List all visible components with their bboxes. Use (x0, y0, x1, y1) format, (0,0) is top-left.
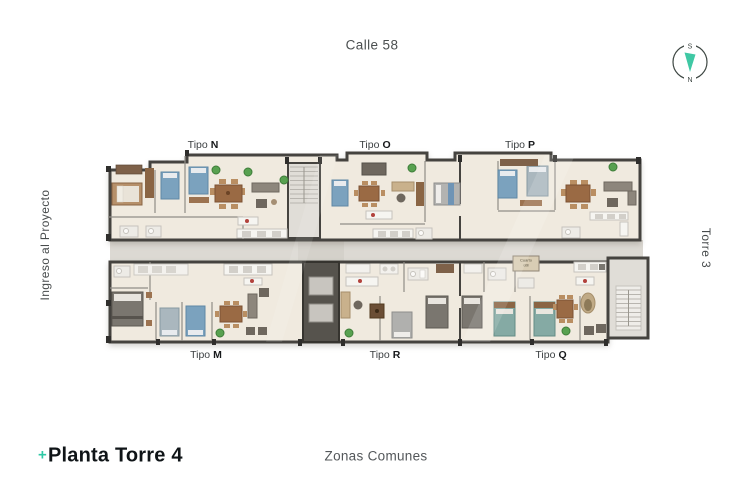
unit-label-tipo-o: TipoO (359, 139, 390, 151)
plan-title: +Planta Torre 4 (38, 445, 183, 468)
common-zones-label: Zonas Comunes (325, 449, 428, 464)
stair-core-lower (608, 258, 648, 338)
plan-title-text: Planta Torre 4 (48, 445, 183, 468)
plant (408, 164, 416, 172)
double-bed (434, 183, 460, 205)
street-label: Calle 58 (346, 38, 399, 53)
unit-label-tipo-q: TipoQ (535, 349, 566, 361)
lower-block (106, 256, 648, 346)
unit-label-letter: N (211, 139, 219, 151)
unit-label-tipo-p: TipoP (505, 139, 535, 151)
bathroom-fixtures (562, 227, 580, 238)
bathroom-fixtures (518, 278, 534, 288)
washer-closet (380, 264, 398, 274)
bathroom-fixtures (416, 228, 432, 239)
unit-label-prefix: Tipo (505, 139, 525, 151)
compass: S N (670, 41, 710, 83)
unit-label-tipo-m: TipoM (190, 349, 222, 361)
single-bed (498, 170, 517, 198)
wardrobe (436, 264, 454, 273)
double-bed (112, 183, 142, 205)
tower3-label: Torre 3 (699, 228, 713, 268)
plant (212, 166, 220, 174)
double-bed (426, 296, 448, 328)
unit-label-letter: M (213, 349, 222, 361)
bathroom-fixtures (114, 266, 130, 277)
lounge-chair (581, 293, 595, 313)
nightstand (146, 320, 152, 326)
unit-label-letter: Q (558, 349, 566, 361)
balcony-chairs (362, 163, 386, 175)
unit-label-letter: P (528, 139, 535, 151)
kitchen-counter (346, 277, 378, 286)
single-bed (392, 312, 412, 338)
unit-label-prefix: Tipo (359, 139, 379, 151)
wardrobe (500, 159, 538, 166)
unit-label-tipo-r: TipoR (370, 349, 401, 361)
plant (216, 329, 224, 337)
elevator-core (303, 262, 339, 342)
unit-label-prefix: Tipo (190, 349, 210, 361)
desk (576, 277, 594, 285)
single-bed (161, 172, 179, 199)
unit-label-tipo-n: TipoN (188, 139, 219, 151)
compass-icon: S N (670, 41, 710, 83)
plant (280, 176, 288, 184)
closet-white (464, 264, 482, 273)
nightstand (146, 292, 152, 298)
unit-label-letter: R (393, 349, 401, 361)
plant (244, 168, 252, 176)
utility-room-label: Cuarto útil (518, 258, 534, 267)
dining-set (370, 304, 384, 318)
bathroom-fixtures (408, 268, 428, 280)
single-bed (534, 302, 555, 336)
console-table (189, 197, 209, 203)
unit-label-letter: O (382, 139, 390, 151)
compass-needle (685, 53, 696, 73)
unit-label-prefix: Tipo (370, 349, 390, 361)
single-bed (189, 167, 208, 194)
floor-plan-graphic (0, 0, 750, 500)
plus-icon: + (38, 447, 47, 464)
closet-white (134, 264, 188, 275)
compass-south-label: S (688, 44, 693, 51)
floorplan-page: Calle 58 S N Ingreso al Proyecto Torre 3… (0, 0, 750, 500)
double-bed (112, 292, 143, 326)
kitchen-counter (574, 262, 606, 272)
plant (562, 327, 570, 335)
central-corridor (110, 240, 643, 262)
plant (609, 163, 617, 171)
single-bed (186, 306, 205, 336)
single-bed (160, 308, 179, 336)
compass-north-label: N (687, 77, 692, 83)
unit-label-prefix: Tipo (535, 349, 555, 361)
entrance-label: Ingreso al Proyecto (38, 190, 52, 301)
closet-white (346, 264, 370, 273)
unit-label-prefix: Tipo (188, 139, 208, 151)
plant (345, 329, 353, 337)
single-bed (332, 180, 348, 206)
